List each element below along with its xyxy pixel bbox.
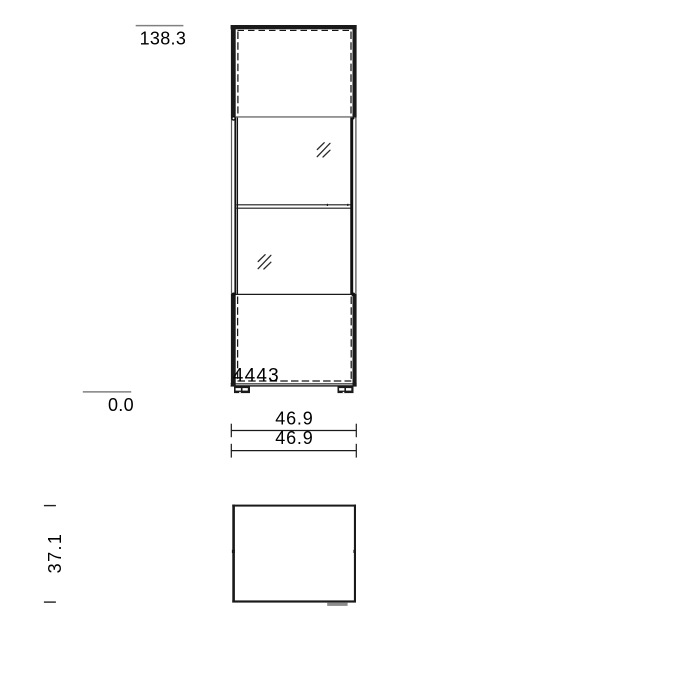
svg-text:4443: 4443 [233, 365, 280, 386]
svg-text:37.1: 37.1 [45, 533, 65, 574]
svg-text:46.9: 46.9 [275, 409, 313, 429]
svg-text:138.3: 138.3 [140, 29, 187, 49]
svg-text:46.9: 46.9 [275, 428, 313, 448]
svg-text:0.0: 0.0 [108, 395, 134, 415]
